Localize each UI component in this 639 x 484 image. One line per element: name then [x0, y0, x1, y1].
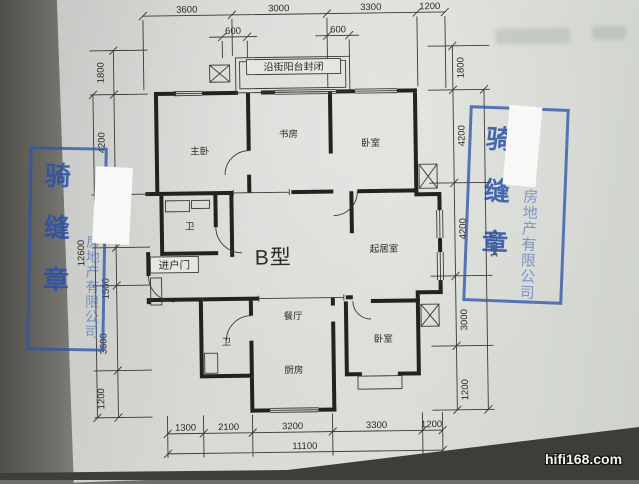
dim-label: 3000 — [268, 3, 289, 14]
dimension-lines — [88, 7, 495, 459]
dim-label: 2100 — [218, 422, 239, 433]
dim-label: 1200 — [421, 419, 442, 430]
dim-label: 3000 — [459, 309, 470, 330]
room-label-bath-lower: 卫 — [222, 337, 232, 348]
room-label-living: 起居室 — [370, 243, 399, 255]
room-label-dining: 餐厅 — [283, 310, 303, 322]
room-label-study: 书房 — [279, 128, 298, 140]
dimension-ticks — [88, 7, 493, 459]
flue-shaft-icon — [421, 304, 439, 326]
dim-label: 3300 — [366, 420, 387, 431]
redaction-box — [92, 166, 133, 245]
dim-label: 1800 — [455, 57, 466, 78]
photo-of-floorplan: { "photo": { "watermark": "hifi168.com" … — [0, 0, 639, 480]
seal-text: 骑缝章 — [36, 161, 76, 318]
unit-type-label: B型 — [255, 246, 292, 270]
room-label-bedroom-top: 卧室 — [361, 137, 380, 149]
redaction-box — [503, 105, 543, 188]
flue-shaft-icon — [419, 164, 437, 188]
window-lines — [174, 88, 445, 414]
room-label-bedroom-bottom: 卧室 — [374, 333, 393, 345]
dim-label: 4200 — [456, 125, 467, 146]
room-label-kitchen: 厨房 — [284, 364, 303, 376]
room-label-master-bedroom: 主卧 — [190, 145, 210, 157]
entry-door-label: 进户门 — [159, 259, 191, 272]
balcony-label: 沿街阳台封闭 — [263, 60, 323, 74]
bay-window — [358, 376, 402, 390]
dim-label: 1300 — [175, 422, 196, 433]
dim-label: 3300 — [360, 2, 381, 13]
dim-label: 1200 — [419, 1, 440, 12]
bathroom-fixtures — [149, 200, 217, 374]
dim-label: 600 — [225, 26, 241, 37]
site-watermark: hifi168.com — [545, 451, 622, 467]
dim-label: 1200 — [96, 388, 107, 409]
room-labels: 沿街阳台封闭 主卧 书房 卧室 卫 起居室 餐厅 卫 厨房 卧室 进户门 B型 — [147, 58, 400, 378]
dim-label: 3200 — [282, 421, 303, 432]
flue-shaft-icon — [210, 65, 230, 82]
seal-company-text: 房地产有限公司 — [515, 188, 540, 301]
dim-label: 1200 — [460, 379, 471, 400]
dim-total-label: 11100 — [292, 441, 317, 452]
seal-company-text: 房地产有限公司 — [81, 234, 103, 339]
dim-label: 1800 — [95, 62, 106, 83]
dim-label: 600 — [330, 24, 346, 35]
extension-lines — [89, 15, 495, 459]
dim-label: 3600 — [176, 4, 197, 15]
room-label-bath-upper: 卫 — [185, 221, 195, 232]
